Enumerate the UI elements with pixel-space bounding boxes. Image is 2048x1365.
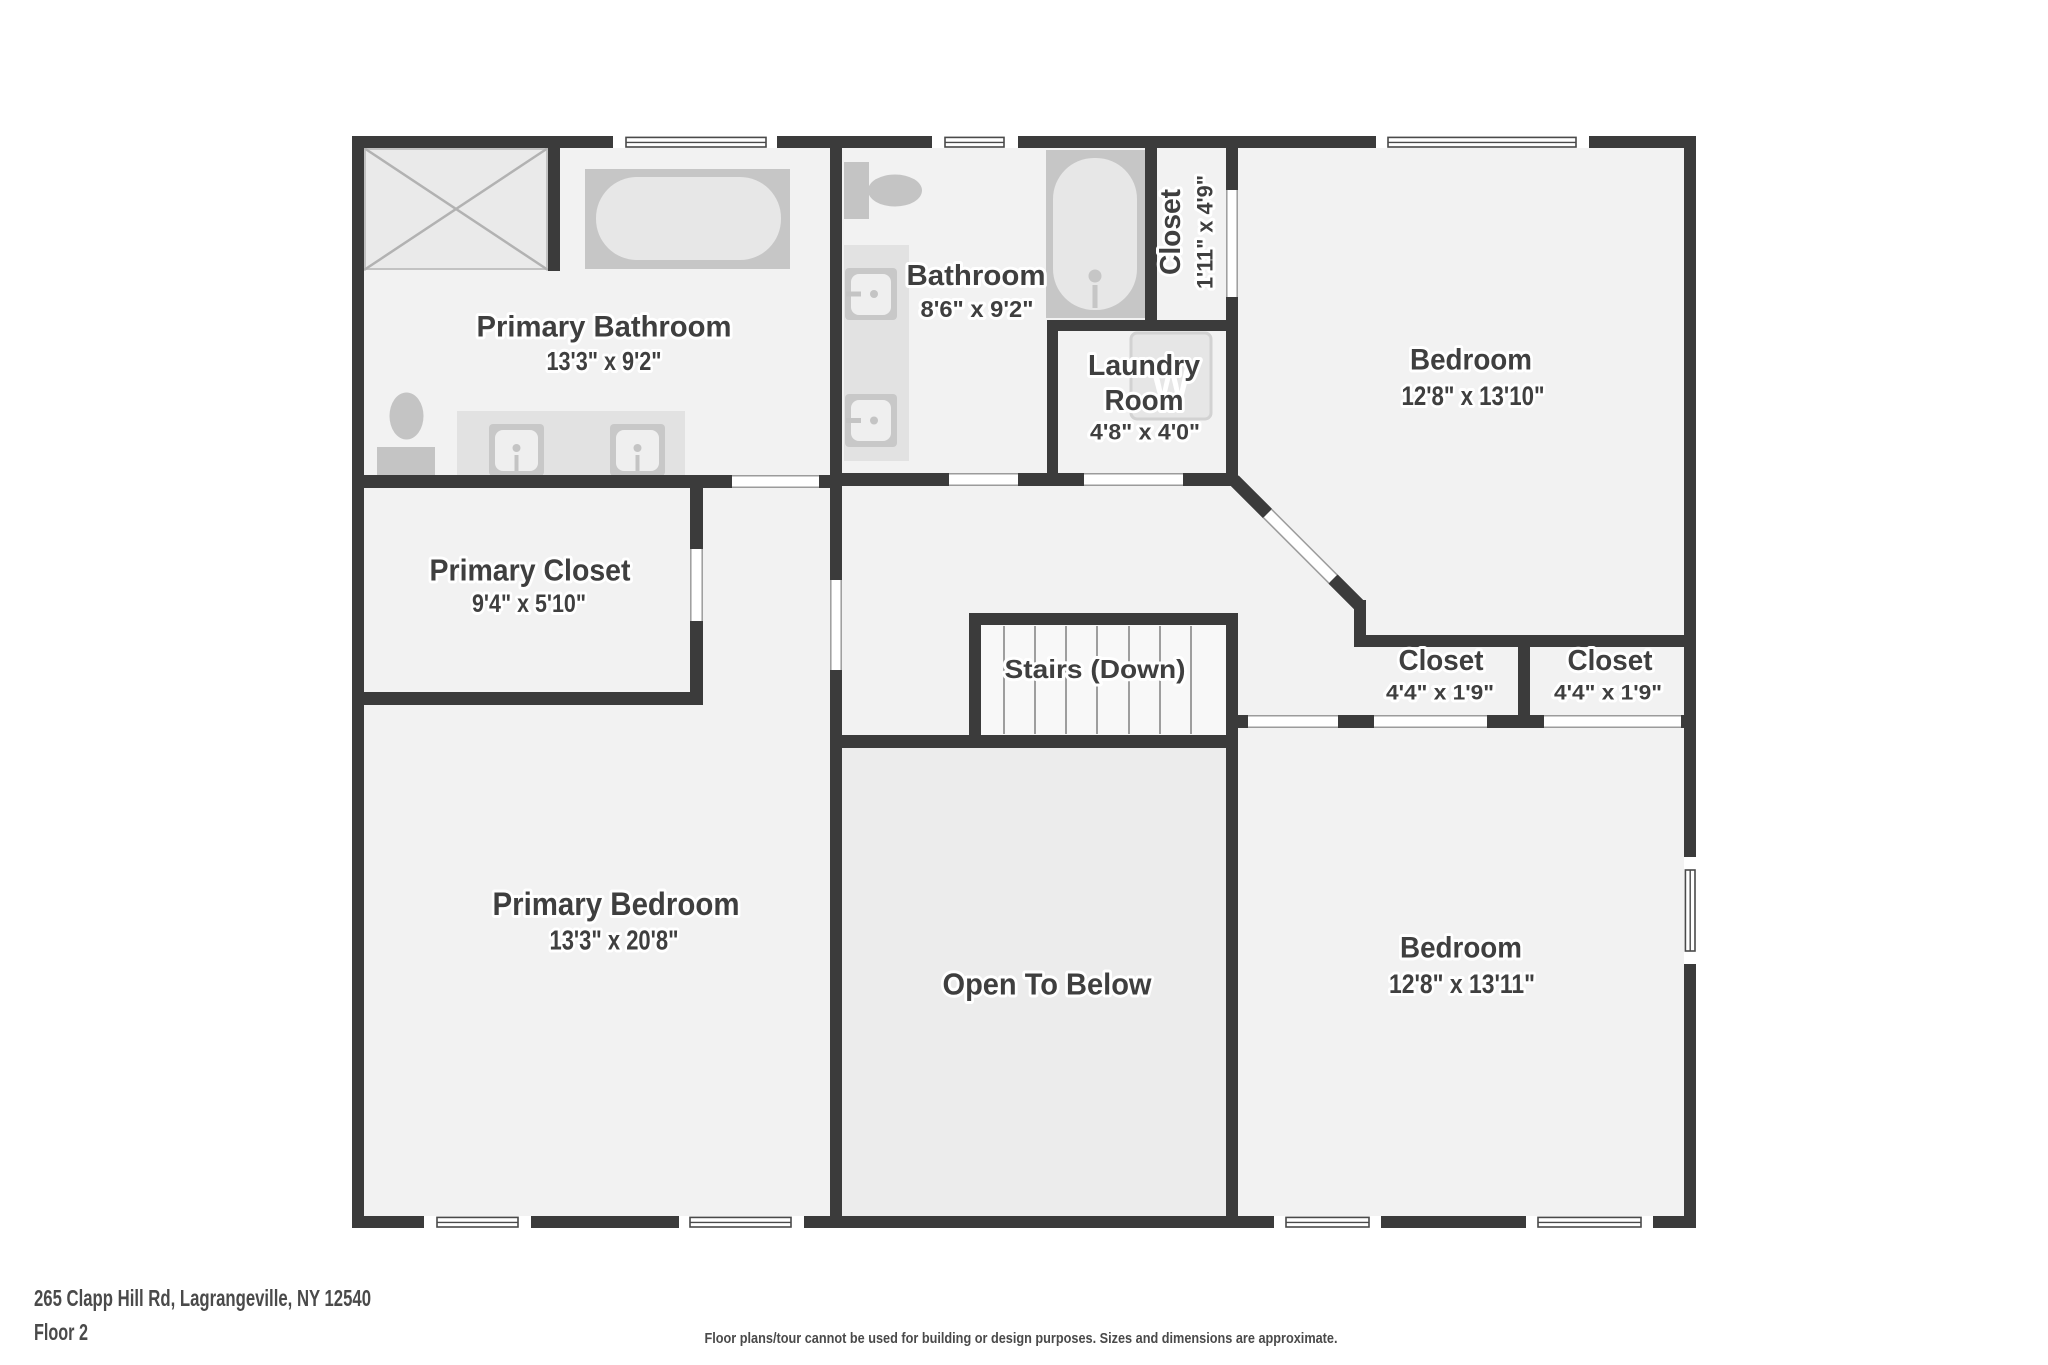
svg-text:8'6" x 9'2": 8'6" x 9'2" (921, 296, 1034, 322)
svg-text:Floor plans/tour cannot be use: Floor plans/tour cannot be used for buil… (705, 1330, 1338, 1347)
svg-text:4'8" x 4'0": 4'8" x 4'0" (1090, 420, 1200, 445)
svg-text:Floor 2: Floor 2 (34, 1319, 88, 1345)
svg-text:Primary Bedroom: Primary Bedroom (493, 886, 740, 922)
svg-text:12'8" x 13'11": 12'8" x 13'11" (1389, 969, 1535, 999)
svg-text:13'3" x 9'2": 13'3" x 9'2" (547, 346, 662, 376)
svg-text:1'11" x 4'9": 1'11" x 4'9" (1193, 175, 1218, 289)
svg-text:9'4" x 5'10": 9'4" x 5'10" (472, 590, 586, 618)
svg-text:Closet: Closet (1155, 189, 1187, 275)
svg-text:Closet: Closet (1568, 645, 1653, 677)
svg-text:12'8" x 13'10": 12'8" x 13'10" (1402, 381, 1545, 411)
svg-text:Stairs (Down): Stairs (Down) (1005, 654, 1186, 684)
svg-text:Open To Below: Open To Below (943, 967, 1153, 1002)
svg-text:4'4" x 1'9": 4'4" x 1'9" (1554, 682, 1662, 705)
svg-text:Bedroom: Bedroom (1410, 344, 1532, 377)
svg-text:Bathroom: Bathroom (907, 260, 1046, 292)
svg-text:265 Clapp Hill Rd, Lagrangevil: 265 Clapp Hill Rd, Lagrangeville, NY 125… (34, 1285, 371, 1311)
svg-text:4'4" x 1'9": 4'4" x 1'9" (1386, 682, 1494, 705)
svg-text:Laundry: Laundry (1088, 350, 1200, 382)
svg-text:13'3" x 20'8": 13'3" x 20'8" (550, 925, 679, 956)
svg-text:Closet: Closet (1399, 645, 1484, 677)
svg-text:Primary Bathroom: Primary Bathroom (477, 311, 732, 344)
svg-text:Primary Closet: Primary Closet (430, 553, 631, 588)
svg-text:Room: Room (1105, 385, 1184, 417)
svg-text:Bedroom: Bedroom (1400, 932, 1522, 965)
